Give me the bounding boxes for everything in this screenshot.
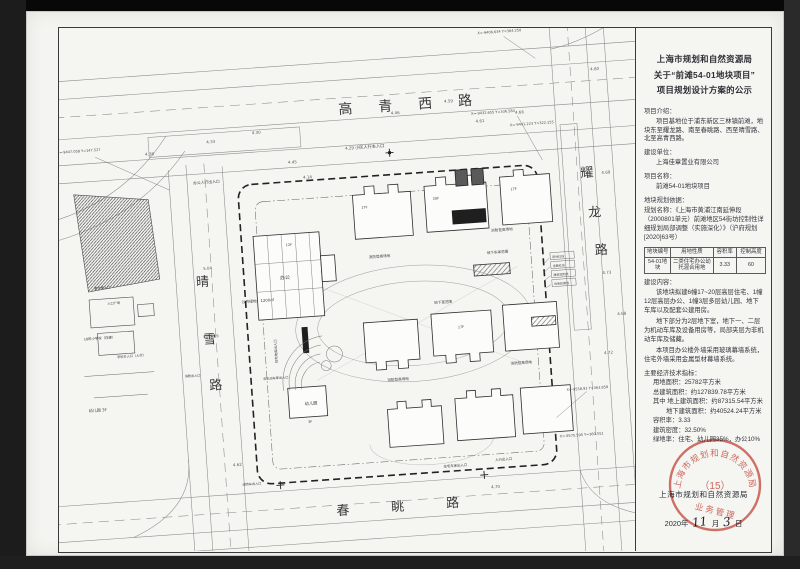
plan-label: 办公	[280, 274, 290, 282]
document-sheet: 高青西路 春眺路 耀 龙 路 晴 雪 路 小区人行主入口 办公人行出入口 办公	[26, 11, 784, 556]
plan-label: 学校主入口（人行）	[117, 352, 146, 359]
legend-label: 道路红线	[553, 262, 565, 268]
plan-label: 20F	[433, 196, 440, 200]
spot-elevation: 4.72	[604, 350, 614, 356]
plan-label: 幼儿园 3F	[89, 406, 108, 413]
basis-heading: 地块规划依据：	[644, 197, 765, 206]
cell-height-limit: 60	[736, 257, 765, 274]
developer-heading: 建设单位：	[644, 149, 765, 158]
spot-elevation: 4.61	[475, 118, 485, 124]
playground-curves	[280, 335, 345, 391]
cell-parcel-id: 54-01地块	[645, 257, 671, 274]
plan-label: 12F	[286, 243, 293, 247]
adjacent-school-parcel	[72, 189, 168, 398]
plan-label: 入口广场	[107, 300, 120, 306]
site-plan-drawing: 高青西路 春眺路 耀 龙 路 晴 雪 路 小区人行主入口 办公人行出入口 办公	[59, 28, 635, 551]
plan-label: 18班小学校（在建）	[84, 334, 116, 341]
project-name: 前滩54-01地块项目	[644, 183, 765, 192]
spot-elevation: 5.04	[203, 265, 213, 271]
plan-label: 消防登高场地	[369, 253, 391, 260]
road-name-west-char1: 晴	[196, 275, 210, 291]
econ-item: 其中 地上建筑面积：约87315.54平方米	[644, 398, 765, 407]
coord-callout: X=-9441.223 Y=322.155	[510, 120, 554, 127]
road-name-south: 春眺路	[336, 492, 502, 519]
plan-label: 17F	[510, 187, 517, 191]
parcel-table-header-row: 地块编号 用地性质 容积率 控制高度	[645, 247, 766, 257]
plan-label: 办公人行出入口	[193, 179, 220, 186]
spot-elevation: 4.62	[233, 462, 243, 468]
plan-label: 住宅地库出入口	[272, 339, 279, 363]
plan-label: 人行出入口	[495, 456, 512, 462]
scan-edge-bottom	[0, 556, 800, 569]
spot-elevation: 4.66	[515, 109, 525, 115]
header-cell: 控制高度	[736, 247, 765, 257]
coord-callout: X=-9432.655 Y=336.584	[471, 109, 516, 116]
scan-edge-right	[784, 0, 800, 569]
content-paragraph-2: 地下部分为2层地下室，地下一、二层为机动车库及设备用房等，局部夹层为非机动车库及…	[644, 318, 765, 345]
header-cell: 用地性质	[671, 247, 713, 257]
seal-bottom-text: 业务管理	[694, 500, 738, 521]
spot-elevation: 4.69	[601, 169, 611, 175]
legend-label: 地库轮廓线	[554, 280, 569, 286]
legend-label: 用地红线	[552, 253, 564, 259]
plan-label: 消防登高场地	[387, 376, 409, 383]
spot-elevation: 4.33	[206, 139, 216, 145]
header-cell: 地块编号	[645, 247, 671, 257]
road-name-east-char2: 龙	[588, 205, 602, 221]
basis-text: 规划名称：《上海市黄浦江南延伸段（2000801单元）前滩地区54街坊控制性详细…	[644, 207, 765, 243]
official-seal: 上海市规划和自然资源局 （15） 业务管理	[666, 436, 764, 534]
header-cell: 容积率	[713, 247, 736, 257]
plan-label: 消防出入口	[184, 372, 200, 378]
legend-label: 建筑控制线	[553, 271, 568, 277]
seal-center-text: （15）	[699, 480, 730, 492]
plan-label: 消防登高场地	[510, 359, 532, 366]
buildings	[249, 163, 573, 456]
content-paragraph-3: 本项目办公楼外墙采用玻璃幕墙系统，住宅外墙采用金属型材幕墙系统。	[644, 347, 765, 365]
plan-label: 地下车库范围	[487, 249, 509, 256]
econ-item: 总建筑面积：约127839.78平方米	[644, 389, 765, 398]
spot-elevation: 4.38	[145, 151, 155, 157]
plan-label: 17F	[458, 325, 465, 329]
spot-elevation: 4.73	[602, 269, 612, 275]
notice-title-line1: 上海市规划和自然资源局	[644, 52, 765, 68]
road-name-east-char1: 耀	[580, 166, 594, 182]
notice-title: 上海市规划和自然资源局 关于“前滩54-01地块项目” 项目规划设计方案的公示	[644, 52, 765, 99]
notice-panel: 上海市规划和自然资源局 关于“前滩54-01地块项目” 项目规划设计方案的公示 …	[635, 28, 771, 551]
spot-elevation: 4.59	[444, 98, 454, 104]
parcel-table-data-row: 54-01地块 二类住宅办公幼托混合用地 3.33 60	[645, 257, 766, 274]
coord-callout: X=-9575.595 Y=360.551	[560, 431, 604, 438]
spot-elevation: 4.80	[590, 66, 600, 72]
econ-item: 容积率：3.33	[644, 417, 765, 426]
econ-item: 建筑密度：32.50%	[644, 427, 765, 436]
drawing-frame: 高青西路 春眺路 耀 龙 路 晴 雪 路 小区人行主入口 办公人行出入口 办公	[58, 27, 772, 553]
notice-title-line3: 项目规划设计方案的公示	[644, 83, 765, 99]
plan-label: 地下室范围	[434, 299, 453, 305]
cell-far: 3.33	[713, 257, 736, 274]
intro-text: 项目基地位于浦东新区三林镇前滩，地块东至耀龙路、南至春眺路、西至晴雪路、北至高青…	[644, 118, 765, 145]
plan-label: 3F	[308, 420, 312, 424]
econ-item: 用地面积：25782平方米	[644, 379, 765, 388]
spot-elevation: 4.30	[252, 130, 262, 136]
coord-callout: X=-9447.058 Y=147.527	[59, 148, 101, 155]
intro-heading: 项目介绍：	[644, 108, 765, 117]
scan-edge-left	[0, 0, 26, 569]
scan-edge-top	[0, 0, 800, 11]
coord-callout: X=-9558.91 Y=363.858	[566, 385, 608, 392]
coord-callout: X=-9406.634 Y=364.250	[477, 28, 521, 35]
content-paragraph-1: 该地块拟建6幢17~20层高层住宅、1幢12层高层办公、1幢3层多层幼儿园、地下…	[644, 289, 765, 316]
spot-elevation: 5.15	[210, 333, 220, 339]
project-heading: 项目名称：	[644, 173, 765, 182]
spot-elevation: 4.68	[617, 311, 627, 317]
content-heading: 建设内容：	[644, 279, 765, 288]
developer-name: 上海佳章置业有限公司	[644, 159, 765, 168]
spot-elevation: 4.14	[303, 174, 313, 180]
econ-item: 地下建筑面积：约40524.24平方米	[644, 408, 765, 417]
spot-elevation: 4.70	[491, 484, 501, 490]
road-name-east-char3: 路	[594, 242, 608, 259]
plan-label: 消防登高场地	[491, 226, 513, 233]
road-name-west-char3: 路	[209, 377, 223, 394]
cell-land-use: 二类住宅办公幼托混合用地	[671, 257, 713, 274]
notice-title-line2: 关于“前滩54-01地块项目”	[644, 68, 765, 84]
plan-label: 17F	[361, 205, 368, 209]
plan-label: 消防车出入口	[242, 480, 261, 486]
parcel-table: 地块编号 用地性质 容积率 控制高度 54-01地块 二类住宅办公幼托混合用地 …	[644, 247, 766, 274]
spot-elevation: 4.45	[288, 159, 298, 165]
spot-elevation: 4.29	[345, 145, 355, 151]
econ-heading: 主要经济技术指标：	[644, 370, 765, 379]
leader-lines	[89, 32, 589, 448]
spot-elevation: 4.46	[391, 110, 401, 116]
plan-label: 小区人行主入口	[355, 142, 385, 151]
